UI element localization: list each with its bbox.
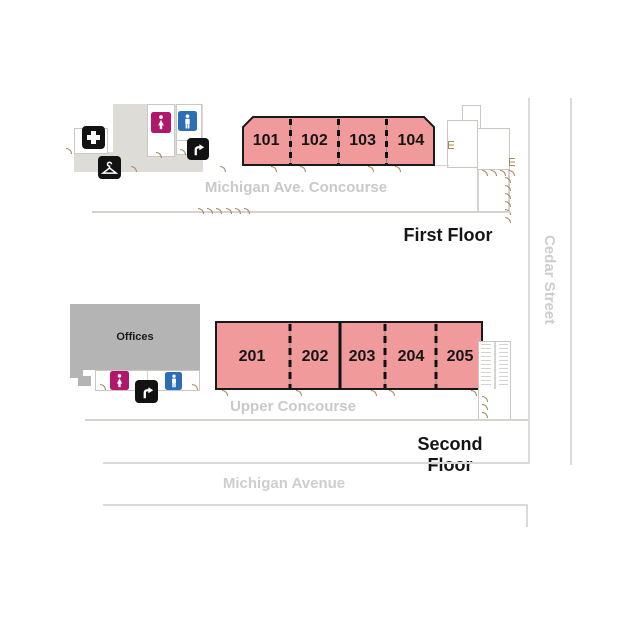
- first-floor-concourse-wall: [92, 211, 510, 213]
- stairs-hatch: [481, 344, 508, 387]
- offices-label: Offices: [116, 331, 153, 343]
- offices-step: [78, 376, 91, 386]
- womens-restroom-icon-f2: [110, 371, 129, 390]
- coat-check-icon: [98, 156, 121, 179]
- room-201: 201: [239, 348, 266, 366]
- escalator-icon-f1: [187, 138, 209, 160]
- wall-segment: [477, 170, 479, 213]
- room-101: 101: [242, 116, 290, 166]
- room-102: 102: [290, 116, 338, 166]
- escalator-arrow-glyph: [139, 384, 155, 400]
- door-cluster: [505, 177, 511, 223]
- womens-restroom-icon-f1: [151, 112, 171, 133]
- door-glyph: [222, 390, 228, 396]
- elevator-mark: [509, 158, 515, 166]
- second-floor-room-block: 201 202 203 204 205: [215, 321, 483, 390]
- woman-figure-glyph: [155, 115, 167, 130]
- door-cluster: [226, 208, 250, 214]
- coat-hanger-glyph: [100, 159, 119, 176]
- first-floor-room-block: 101 102 103 104: [242, 116, 435, 166]
- man-figure-glyph: [169, 374, 179, 388]
- escalator-icon-f2: [135, 380, 158, 403]
- door-glyph: [296, 390, 302, 396]
- man-figure-glyph: [182, 114, 193, 129]
- mens-restroom-icon-f1: [178, 111, 197, 131]
- door-cluster: [198, 208, 222, 214]
- michigan-avenue-corner-line: [526, 504, 528, 527]
- door-glyph: [471, 390, 477, 396]
- first-floor-title: First Floor: [403, 225, 493, 246]
- first-aid-cross-glyph: [86, 130, 101, 145]
- woman-figure-glyph: [114, 374, 125, 388]
- upper-concourse-label: Upper Concourse: [193, 398, 393, 415]
- second-floor-title: Second Floor: [400, 434, 500, 476]
- cedar-street-east-line: [570, 98, 572, 465]
- room-204: 204: [398, 348, 425, 366]
- door-glyph: [371, 390, 377, 396]
- elevator-mark: [448, 141, 454, 149]
- michigan-avenue-label: Michigan Avenue: [184, 475, 384, 492]
- door-cluster: [482, 396, 488, 418]
- cedar-street-label: Cedar Street: [541, 232, 558, 327]
- room-104: 104: [387, 116, 435, 166]
- door-glyph: [66, 148, 72, 154]
- wall-segment: [435, 165, 449, 166]
- door-cluster: [482, 170, 515, 176]
- door-glyph: [368, 166, 374, 172]
- first-aid-icon: [82, 126, 105, 149]
- mens-restroom-icon-f2: [165, 372, 182, 390]
- door-glyph: [300, 166, 306, 172]
- room-205: 205: [447, 348, 474, 366]
- room-103: 103: [339, 116, 387, 166]
- michigan-ave-concourse-label: Michigan Ave. Concourse: [171, 179, 421, 196]
- michigan-avenue-north-line: [103, 462, 530, 464]
- outline-room-b-f1: [477, 128, 510, 170]
- door-glyph: [389, 390, 395, 396]
- michigan-avenue-south-line: [103, 504, 528, 506]
- room-202: 202: [302, 348, 329, 366]
- escalator-arrow-glyph: [190, 141, 206, 157]
- door-glyph: [271, 166, 277, 172]
- door-glyph: [220, 166, 226, 172]
- floor-plan-map: 101 102 103 104 Michigan Ave. Concourse …: [0, 0, 640, 640]
- offices-block: Offices: [70, 304, 200, 370]
- room-203: 203: [349, 348, 376, 366]
- cedar-street-west-line: [528, 98, 530, 462]
- first-floor-room-labels: 101 102 103 104: [242, 116, 435, 166]
- second-floor-concourse-wall: [85, 419, 528, 421]
- door-glyph: [395, 166, 401, 172]
